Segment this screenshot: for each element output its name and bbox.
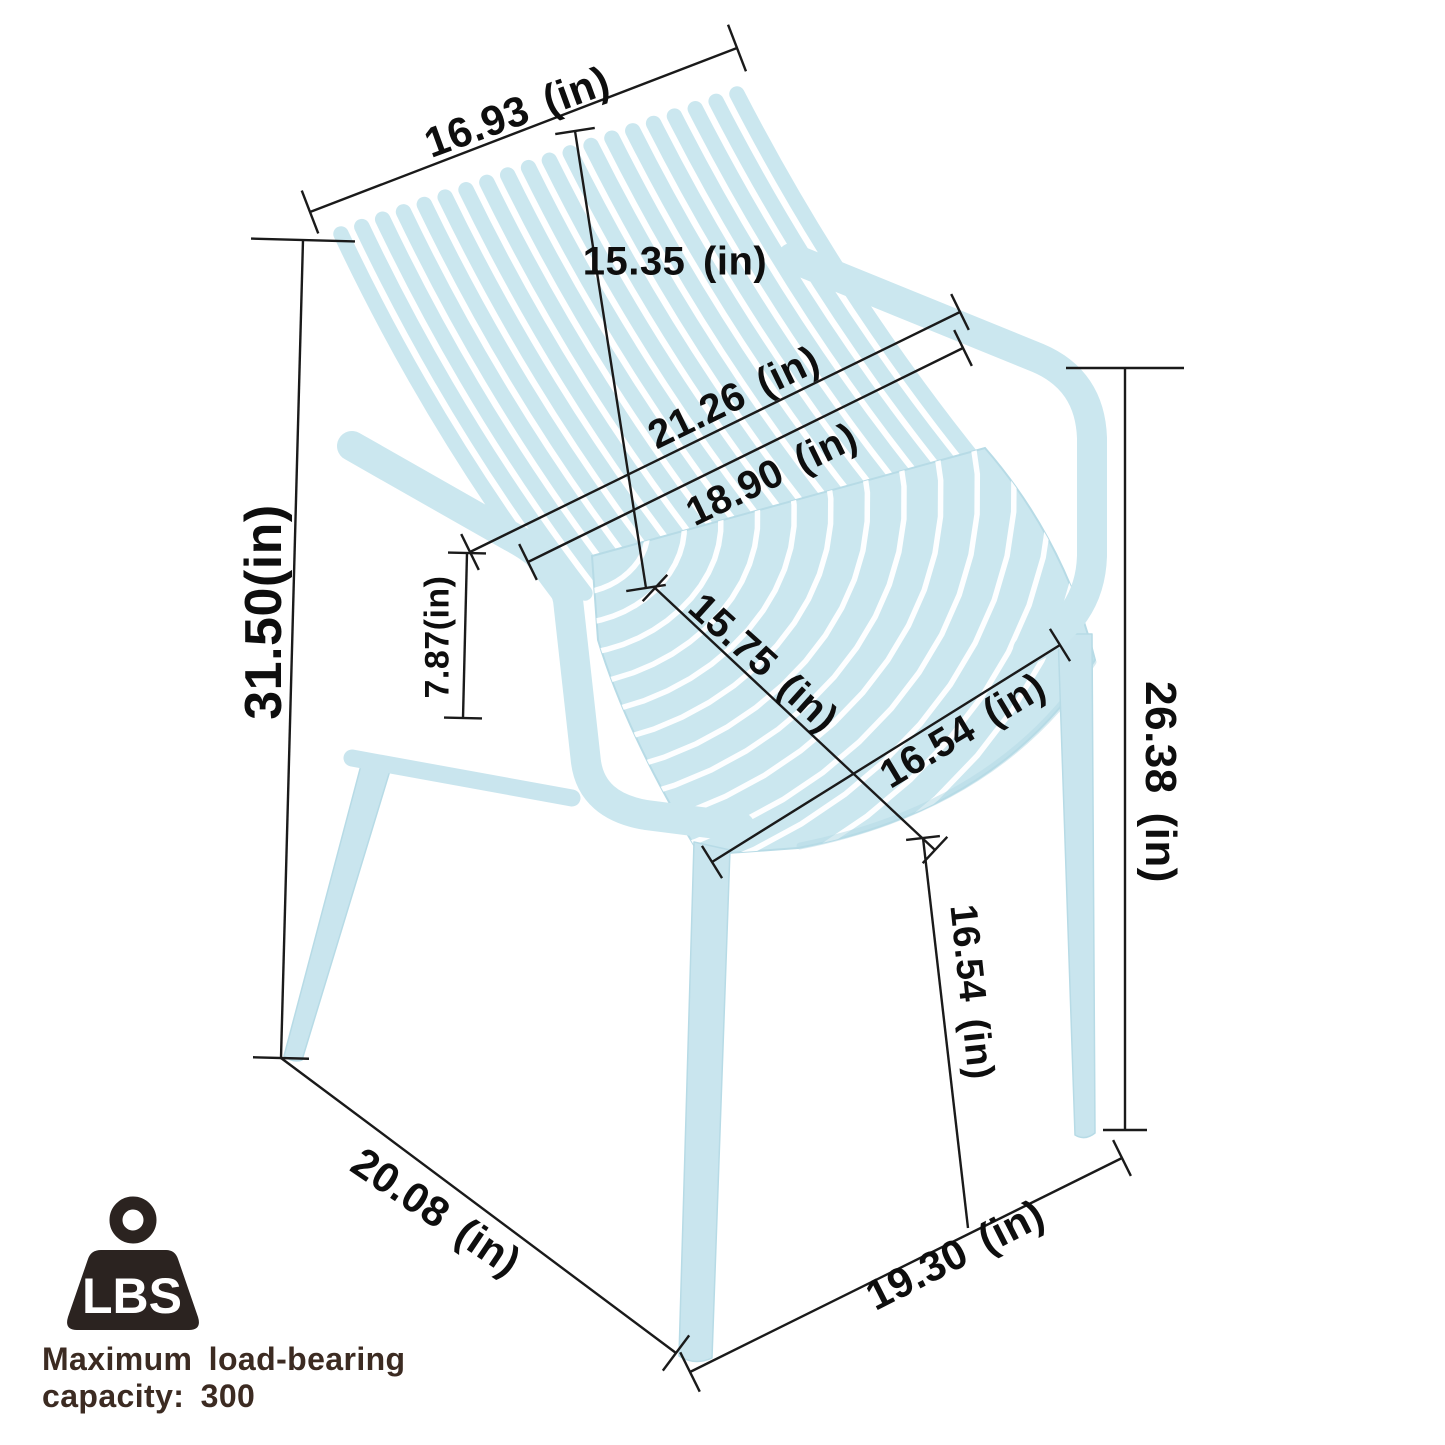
load-capacity-caption-line1: Maximum load-bearing bbox=[42, 1341, 406, 1378]
product-dimension-diagram: LBS 16.93 (in) 15.35 (in) 21.26 (in) 18.… bbox=[0, 0, 1445, 1445]
chair-front-right-leg bbox=[1058, 634, 1095, 1138]
weight-icon-label: LBS bbox=[82, 1268, 182, 1324]
weight-icon-ring bbox=[116, 1203, 150, 1237]
dim-label-armrest-above-seat: 7.87(in) bbox=[419, 575, 458, 698]
load-capacity-caption-line2: capacity: 300 bbox=[42, 1378, 406, 1415]
chair-illustration: LBS bbox=[0, 0, 1445, 1445]
chair-front-left-leg bbox=[679, 842, 730, 1362]
dim-label-backrest-height: 15.35 (in) bbox=[583, 240, 767, 285]
dim-label-overall-height: 31.50(in) bbox=[234, 504, 294, 719]
chair-rear-left-leg bbox=[284, 754, 392, 1061]
weight-icon: LBS bbox=[67, 1203, 199, 1330]
base-depth-line bbox=[281, 1058, 689, 1371]
load-capacity-caption: Maximum load-bearing capacity: 300 bbox=[42, 1341, 406, 1415]
backrest-slat bbox=[362, 227, 585, 593]
dim-label-armrest-floor-height: 26.38 (in) bbox=[1135, 681, 1185, 883]
